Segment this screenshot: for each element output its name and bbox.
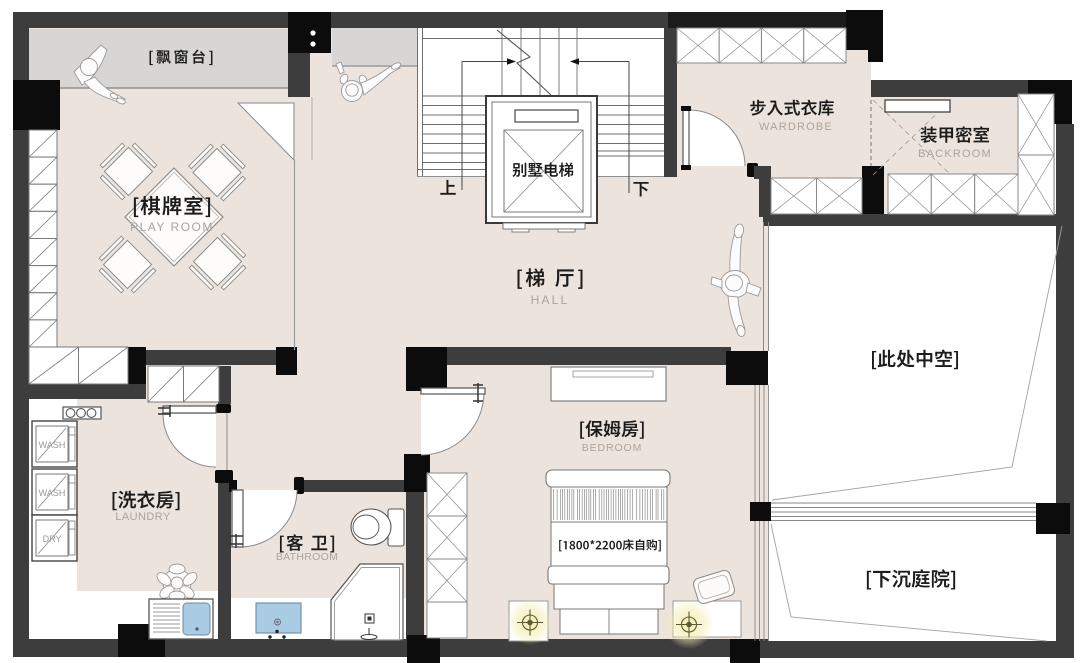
svg-text:DRY: DRY bbox=[43, 534, 62, 544]
svg-text:BEDROOM: BEDROOM bbox=[582, 442, 643, 454]
svg-text:WARDROBE: WARDROBE bbox=[759, 121, 833, 133]
svg-text:LAUNDRY: LAUNDRY bbox=[115, 511, 170, 523]
svg-text:WASH: WASH bbox=[39, 488, 66, 498]
svg-text:BACKROOM: BACKROOM bbox=[918, 148, 992, 160]
svg-text:WASH: WASH bbox=[39, 440, 66, 450]
svg-text:PLAY ROOM: PLAY ROOM bbox=[130, 220, 214, 234]
svg-text:HALL: HALL bbox=[531, 293, 570, 307]
svg-text:BATHROOM: BATHROOM bbox=[276, 551, 338, 563]
